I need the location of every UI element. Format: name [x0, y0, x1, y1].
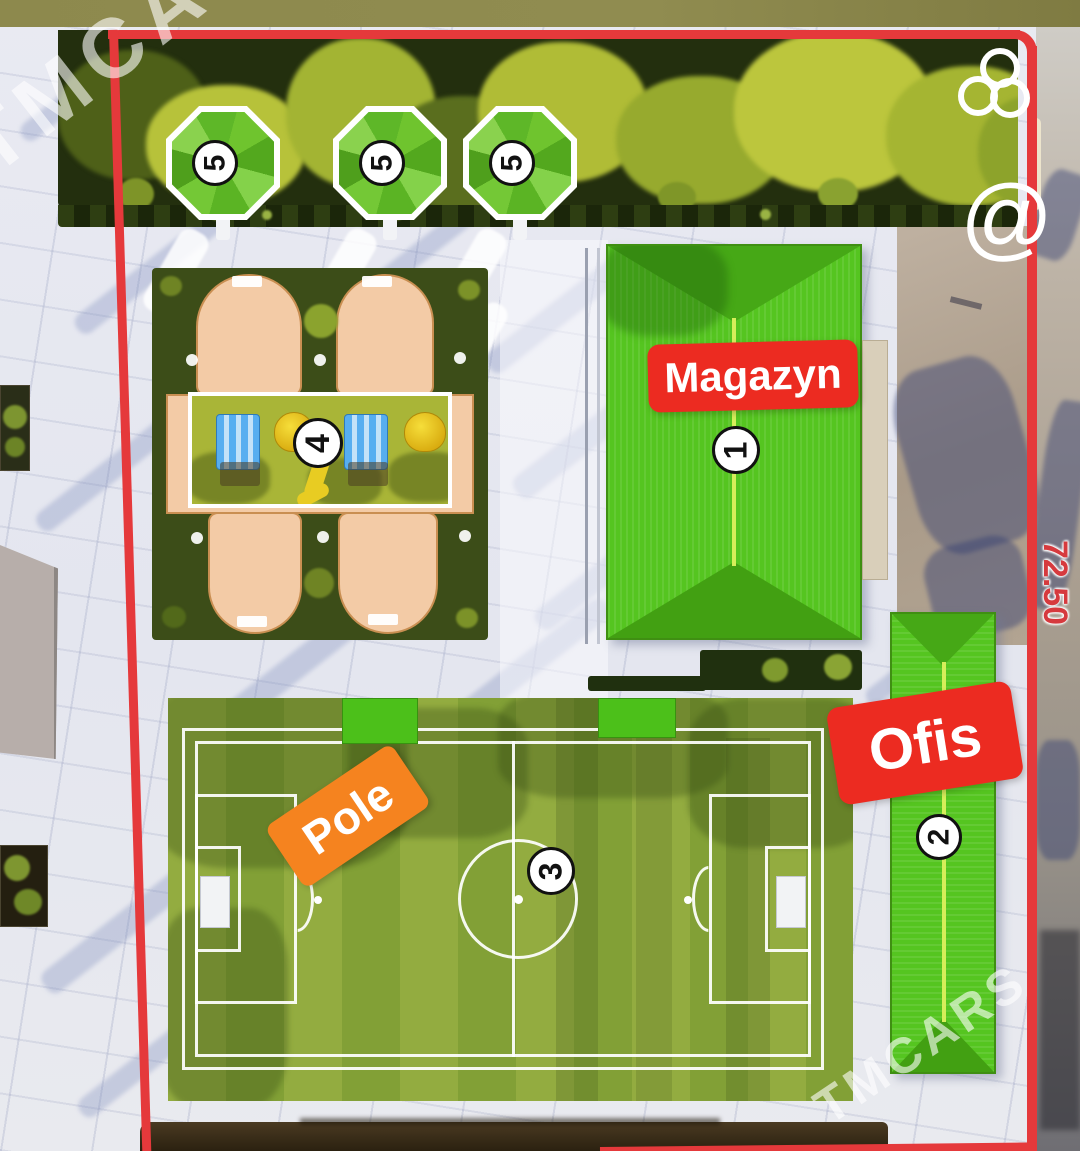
bush: [456, 608, 478, 628]
goal: [776, 876, 806, 928]
bush: [458, 280, 480, 300]
playground-lobe: [196, 274, 302, 396]
bench: [368, 614, 398, 625]
ofis-number-badge: 2: [916, 814, 962, 860]
magazyn-label-text: Magazyn: [664, 350, 843, 403]
ofis-label-text: Ofis: [864, 701, 986, 785]
hedge-bush: [760, 209, 771, 220]
magazyn-porch: [862, 340, 888, 580]
field-number: 3: [532, 862, 569, 880]
playground-number: 4: [298, 434, 337, 453]
gazebo-number-badge: 5: [192, 140, 238, 186]
at-symbol-icon: @: [960, 168, 1052, 268]
penalty-spot: [314, 896, 322, 904]
path-dot: [314, 354, 326, 366]
field-canopy: [342, 698, 418, 744]
bush: [824, 654, 852, 680]
playground-lobe: [336, 274, 434, 396]
bench: [237, 616, 267, 627]
magazyn-label: Magazyn: [647, 339, 859, 412]
wall-line: [597, 248, 600, 644]
soil-strip: [300, 1118, 720, 1125]
three-circles-icon: [958, 48, 1040, 122]
gazebo-number: 5: [495, 155, 529, 172]
wall-line: [585, 248, 588, 644]
path-dot: [454, 352, 466, 364]
field-number-badge: 3: [527, 847, 575, 895]
site-plan-image: 5 5 5: [0, 0, 1080, 1151]
bush: [14, 889, 42, 915]
play-structure: [220, 462, 260, 486]
center-spot: [514, 895, 523, 904]
bush: [162, 606, 186, 628]
bush: [304, 304, 338, 338]
bench: [232, 276, 262, 287]
bush: [5, 437, 25, 457]
bush: [818, 178, 858, 208]
path-dot: [191, 532, 203, 544]
bush: [160, 276, 182, 296]
path-dot: [317, 531, 329, 543]
bush: [304, 568, 334, 598]
hedge-bush: [262, 210, 272, 220]
tree-shadow: [1036, 740, 1080, 860]
boundary-line-top: [108, 30, 1020, 39]
shadow: [388, 452, 452, 502]
walkway: [500, 240, 608, 702]
hedge-strip: [588, 676, 706, 691]
tree-shadow: [606, 244, 728, 336]
bush: [118, 178, 154, 208]
magazyn-number: 1: [717, 441, 754, 459]
path-dot: [459, 530, 471, 542]
circle-icon: [990, 78, 1030, 118]
path-dot: [186, 354, 198, 366]
play-structure: [348, 462, 388, 486]
field-canopy: [598, 698, 676, 738]
bush: [4, 855, 30, 881]
football-field: [168, 698, 853, 1101]
bush: [762, 658, 788, 682]
playground-number-badge: 4: [293, 418, 343, 468]
gazebo-number: 5: [365, 155, 399, 172]
dimension-label: 72.50: [1035, 540, 1074, 625]
magazyn-number-badge: 1: [712, 426, 760, 474]
neighbor-building-roof: [0, 545, 58, 759]
gazebo-number-badge: 5: [489, 140, 535, 186]
bush: [3, 405, 27, 429]
penalty-spot: [684, 896, 692, 904]
ofis-number: 2: [922, 829, 956, 846]
gazebo-number-badge: 5: [359, 140, 405, 186]
gazebo-number: 5: [198, 155, 232, 172]
bench: [362, 276, 392, 287]
goal: [200, 876, 230, 928]
dark-shadow: [1040, 930, 1080, 1130]
play-dome: [404, 412, 446, 452]
